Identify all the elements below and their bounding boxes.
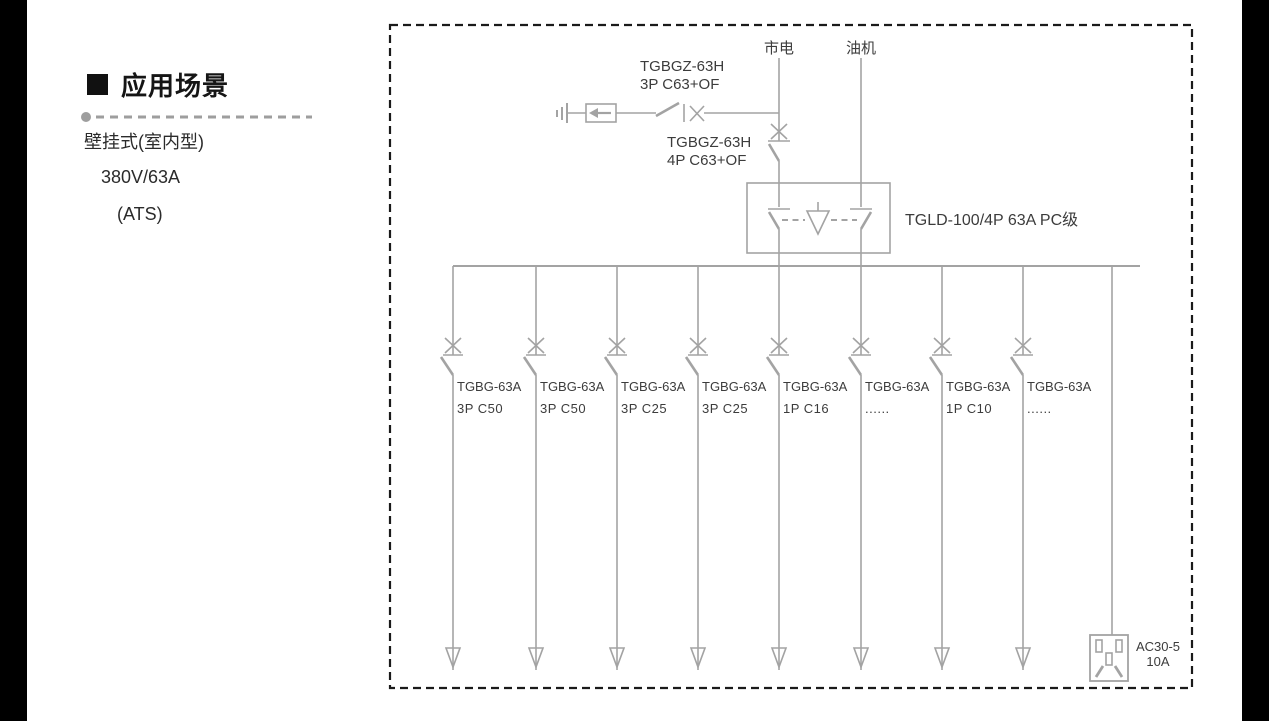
branch-feeder-1 xyxy=(441,266,463,670)
branch-label-1: TGBG-63A 3P C50 xyxy=(457,376,521,420)
branch-model: TGBG-63A xyxy=(621,376,685,398)
branch-model: TGBG-63A xyxy=(865,376,929,398)
branch-feeder-8 xyxy=(1011,266,1033,670)
branch-feeder-5 xyxy=(767,266,789,670)
breaker-rating: 3P C63+OF xyxy=(640,76,724,94)
branch-label-3: TGBG-63A 3P C25 xyxy=(621,376,685,420)
branch-rating: 3P C25 xyxy=(702,398,766,420)
incoming-breaker-3p-label: TGBGZ-63H 3P C63+OF xyxy=(640,58,724,94)
breaker-model: TGBGZ-63H xyxy=(640,58,724,76)
branch-feeder-3 xyxy=(605,266,627,670)
single-line-diagram xyxy=(0,0,1269,721)
branch-label-2: TGBG-63A 3P C50 xyxy=(540,376,604,420)
branch-model: TGBG-63A xyxy=(540,376,604,398)
branch-model: TGBG-63A xyxy=(946,376,1010,398)
branch-rating: 3P C50 xyxy=(540,398,604,420)
ats-switch-icon xyxy=(768,202,872,266)
branch-rating: 3P C50 xyxy=(457,398,521,420)
incoming-breaker-4p-label: TGBGZ-63H 4P C63+OF xyxy=(667,134,751,170)
branch-model: TGBG-63A xyxy=(1027,376,1091,398)
breaker-model: TGBGZ-63H xyxy=(667,134,751,152)
diagram-border xyxy=(390,25,1192,688)
brochure-page: 应用场景 壁挂式(室内型) 380V/63A (ATS) xyxy=(0,0,1269,721)
branch-model: TGBG-63A xyxy=(702,376,766,398)
incoming-breaker-3p-icon xyxy=(656,103,704,122)
mains-source-label: 市电 xyxy=(749,37,809,58)
branch-rating: ...... xyxy=(865,398,929,420)
ats-model-label: TGLD-100/4P 63A PC级 xyxy=(905,206,1078,230)
generator-source-label: 油机 xyxy=(831,37,891,58)
branch-rating: 1P C10 xyxy=(946,398,1010,420)
branch-rating: ...... xyxy=(1027,398,1091,420)
branch-feeder-6 xyxy=(849,266,871,670)
branch-label-7: TGBG-63A 1P C10 xyxy=(946,376,1010,420)
branch-rating: 3P C25 xyxy=(621,398,685,420)
branch-label-4: TGBG-63A 3P C25 xyxy=(702,376,766,420)
heading-divider xyxy=(81,112,312,122)
socket-model: AC30-5 xyxy=(1131,639,1185,654)
breaker-rating: 4P C63+OF xyxy=(667,152,751,170)
socket-label: AC30-5 10A xyxy=(1131,639,1185,669)
branch-label-8: TGBG-63A ...... xyxy=(1027,376,1091,420)
ground-icon xyxy=(557,103,567,123)
branch-feeder-4 xyxy=(686,266,708,670)
branch-model: TGBG-63A xyxy=(457,376,521,398)
branch-model: TGBG-63A xyxy=(783,376,847,398)
branch-label-5: TGBG-63A 1P C16 xyxy=(783,376,847,420)
branch-label-6: TGBG-63A ...... xyxy=(865,376,929,420)
branch-feeder-7 xyxy=(930,266,952,670)
spd-branch xyxy=(557,103,779,123)
branch-rating: 1P C16 xyxy=(783,398,847,420)
branch-feeder-2 xyxy=(524,266,546,670)
socket-rating: 10A xyxy=(1131,654,1185,669)
socket-icon xyxy=(1090,635,1128,681)
spd-icon xyxy=(586,104,616,122)
